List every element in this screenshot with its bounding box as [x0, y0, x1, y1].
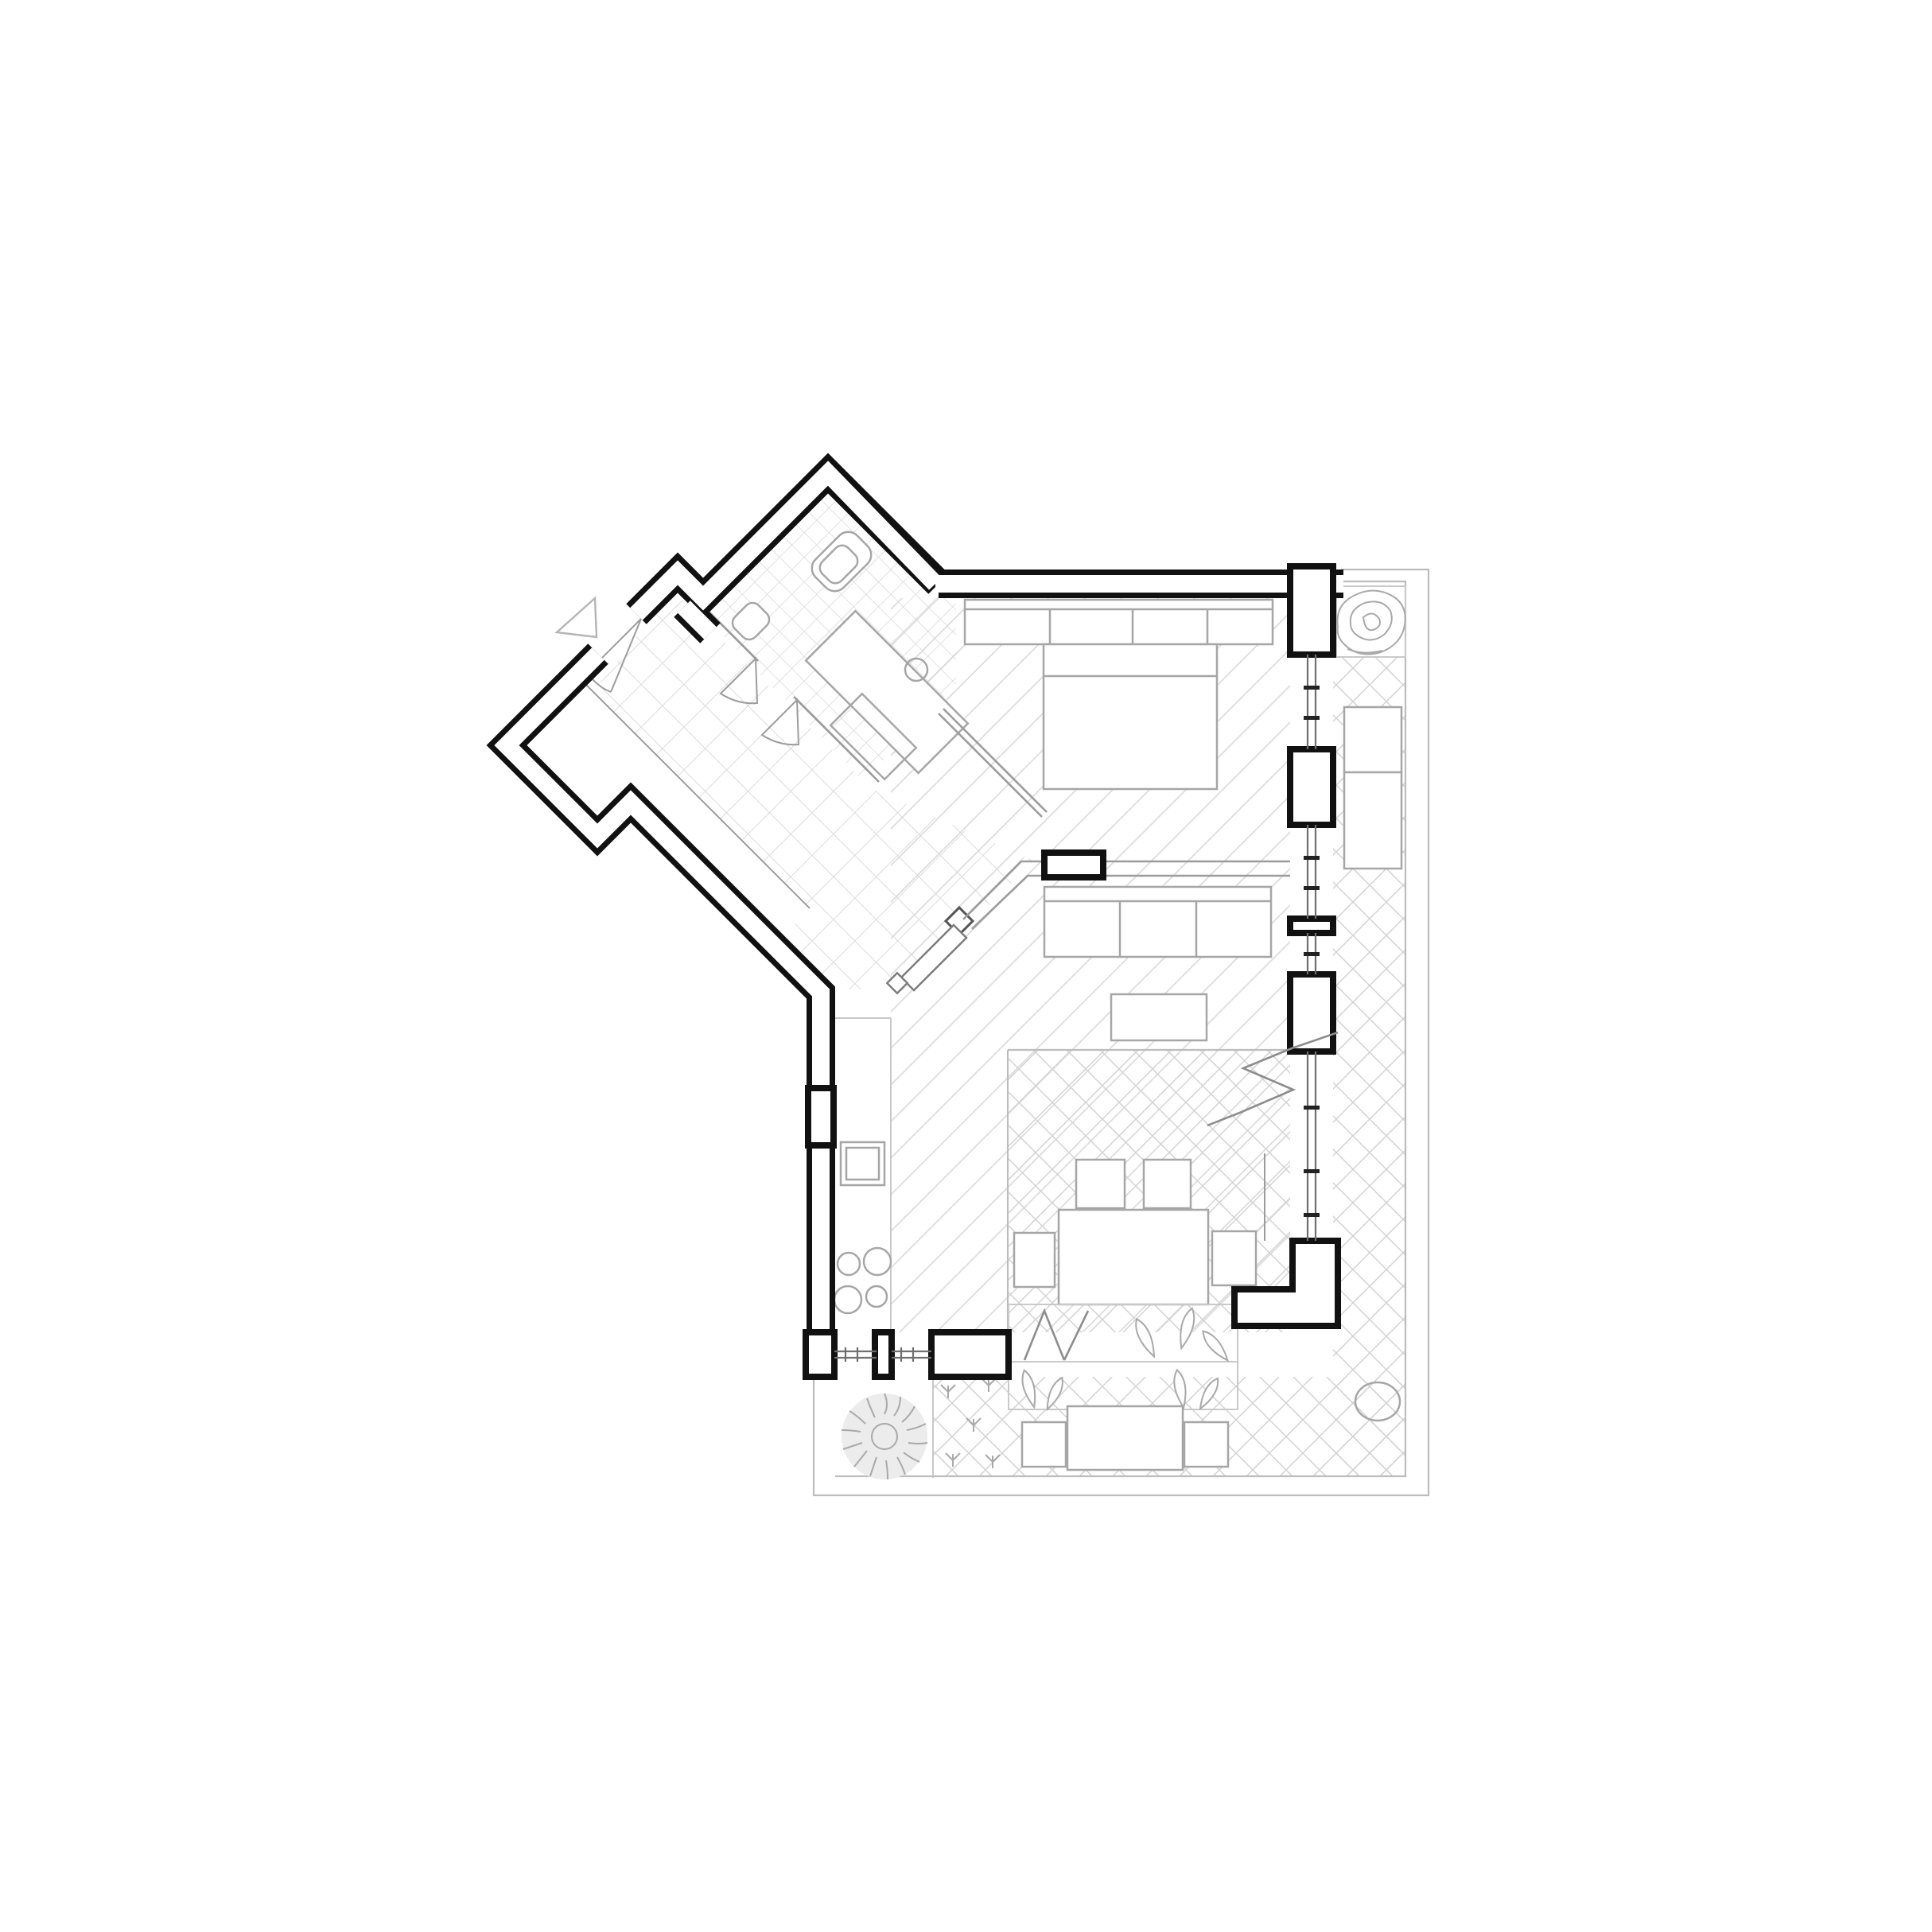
lounger-seat — [1344, 772, 1401, 869]
coffee-table — [1111, 994, 1207, 1040]
partition-pier — [1044, 853, 1103, 877]
balcony-tree-icon — [1337, 590, 1405, 654]
entrance-arrow-icon — [557, 598, 597, 637]
dining-table — [1059, 1210, 1208, 1304]
terrace-chair — [1022, 1422, 1066, 1467]
terrace-table — [1067, 1406, 1183, 1470]
glazing-lines — [1308, 655, 1316, 1241]
dining-chair — [1076, 1160, 1125, 1208]
wall-niche — [808, 1088, 834, 1145]
floor-plan-canvas — [0, 0, 1932, 1932]
dining-chair — [1014, 1233, 1055, 1287]
dining-chair — [1144, 1160, 1191, 1208]
window-pier — [1290, 974, 1333, 1052]
terrace-chair — [1184, 1422, 1228, 1467]
garden-tree-icon — [842, 1394, 927, 1479]
kitchen-floor — [835, 1018, 891, 1332]
bottom-pier — [806, 1332, 834, 1377]
bottom-pier — [931, 1332, 1009, 1377]
window-pier-bar — [1290, 919, 1333, 933]
floor-plan-page — [0, 0, 1932, 1932]
dining-chair — [1212, 1231, 1256, 1285]
bed — [1044, 644, 1217, 789]
bottom-pier — [875, 1332, 892, 1377]
window-pier — [1290, 566, 1333, 655]
wardrobe — [965, 600, 1273, 644]
sofa — [1044, 887, 1271, 957]
lounger-backrest — [1344, 707, 1401, 772]
window-pier — [1290, 749, 1333, 825]
